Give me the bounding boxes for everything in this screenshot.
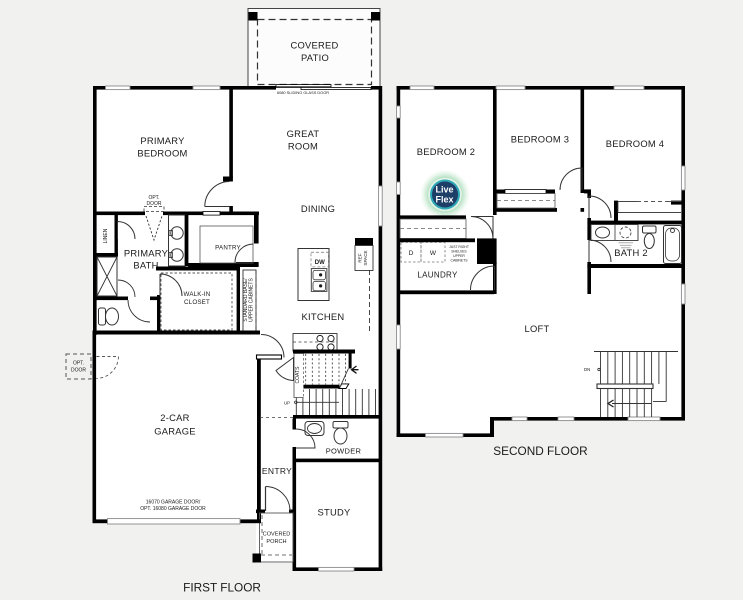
svg-text:BEDROOM 2: BEDROOM 2 <box>417 146 476 157</box>
svg-text:OPT.: OPT. <box>73 361 84 367</box>
svg-text:PATIO: PATIO <box>301 52 329 63</box>
svg-text:PANTRY: PANTRY <box>215 245 241 252</box>
svg-text:FIRST FLOOR: FIRST FLOOR <box>183 581 261 595</box>
svg-text:PORCH: PORCH <box>266 539 286 545</box>
svg-text:PRIMARY: PRIMARY <box>124 248 169 259</box>
svg-text:LOFT: LOFT <box>525 323 550 334</box>
svg-text:CABINETS: CABINETS <box>451 259 469 263</box>
svg-text:6080 SLIDING GLASS DOOR: 6080 SLIDING GLASS DOOR <box>277 90 329 95</box>
svg-text:GREAT: GREAT <box>287 128 320 139</box>
svg-text:COATS: COATS <box>295 366 301 384</box>
svg-text:ROOM: ROOM <box>288 141 318 152</box>
svg-text:BEDROOM: BEDROOM <box>137 148 187 159</box>
svg-text:REF: REF <box>358 253 363 262</box>
svg-text:UPPER CABINETS: UPPER CABINETS <box>249 278 255 322</box>
svg-text:D: D <box>409 250 414 257</box>
svg-text:JUST RIGHT: JUST RIGHT <box>449 245 469 249</box>
svg-text:Flex: Flex <box>435 195 453 205</box>
svg-text:WALK-IN: WALK-IN <box>184 291 211 298</box>
svg-text:STUDY: STUDY <box>317 507 351 518</box>
svg-text:GARAGE: GARAGE <box>154 426 196 437</box>
svg-text:CLOSET: CLOSET <box>184 299 210 306</box>
svg-text:2-CAR: 2-CAR <box>160 412 189 423</box>
svg-text:ENTRY: ENTRY <box>262 466 292 476</box>
svg-text:LINEN: LINEN <box>103 228 109 243</box>
svg-text:SHELVES: SHELVES <box>451 250 467 254</box>
svg-text:LAUNDRY: LAUNDRY <box>417 271 458 280</box>
svg-text:16070 GARAGE DOOR/: 16070 GARAGE DOOR/ <box>146 500 201 506</box>
svg-text:COVERED: COVERED <box>290 40 338 51</box>
svg-text:DW: DW <box>315 260 325 266</box>
svg-text:DINING: DINING <box>301 203 335 214</box>
svg-text:BATH: BATH <box>133 260 158 271</box>
svg-text:OPT. 16080 GARAGE DOOR: OPT. 16080 GARAGE DOOR <box>140 506 206 512</box>
svg-text:SPACE: SPACE <box>363 250 368 265</box>
svg-text:UP: UP <box>284 401 290 406</box>
svg-text:BEDROOM 4: BEDROOM 4 <box>606 138 665 149</box>
svg-text:W: W <box>430 250 437 257</box>
svg-text:KITCHEN: KITCHEN <box>302 311 345 322</box>
svg-text:PRIMARY: PRIMARY <box>140 135 185 146</box>
svg-text:SECOND FLOOR: SECOND FLOOR <box>493 444 587 458</box>
svg-text:BATH 2: BATH 2 <box>614 247 648 258</box>
svg-text:DN: DN <box>584 367 590 372</box>
svg-text:BEDROOM 3: BEDROOM 3 <box>511 134 570 145</box>
svg-text:POWDER: POWDER <box>326 447 362 456</box>
svg-text:DOOR: DOOR <box>71 368 86 374</box>
svg-text:COVERED: COVERED <box>263 532 291 538</box>
svg-text:Live: Live <box>435 185 453 195</box>
svg-text:UPPER: UPPER <box>453 254 465 258</box>
